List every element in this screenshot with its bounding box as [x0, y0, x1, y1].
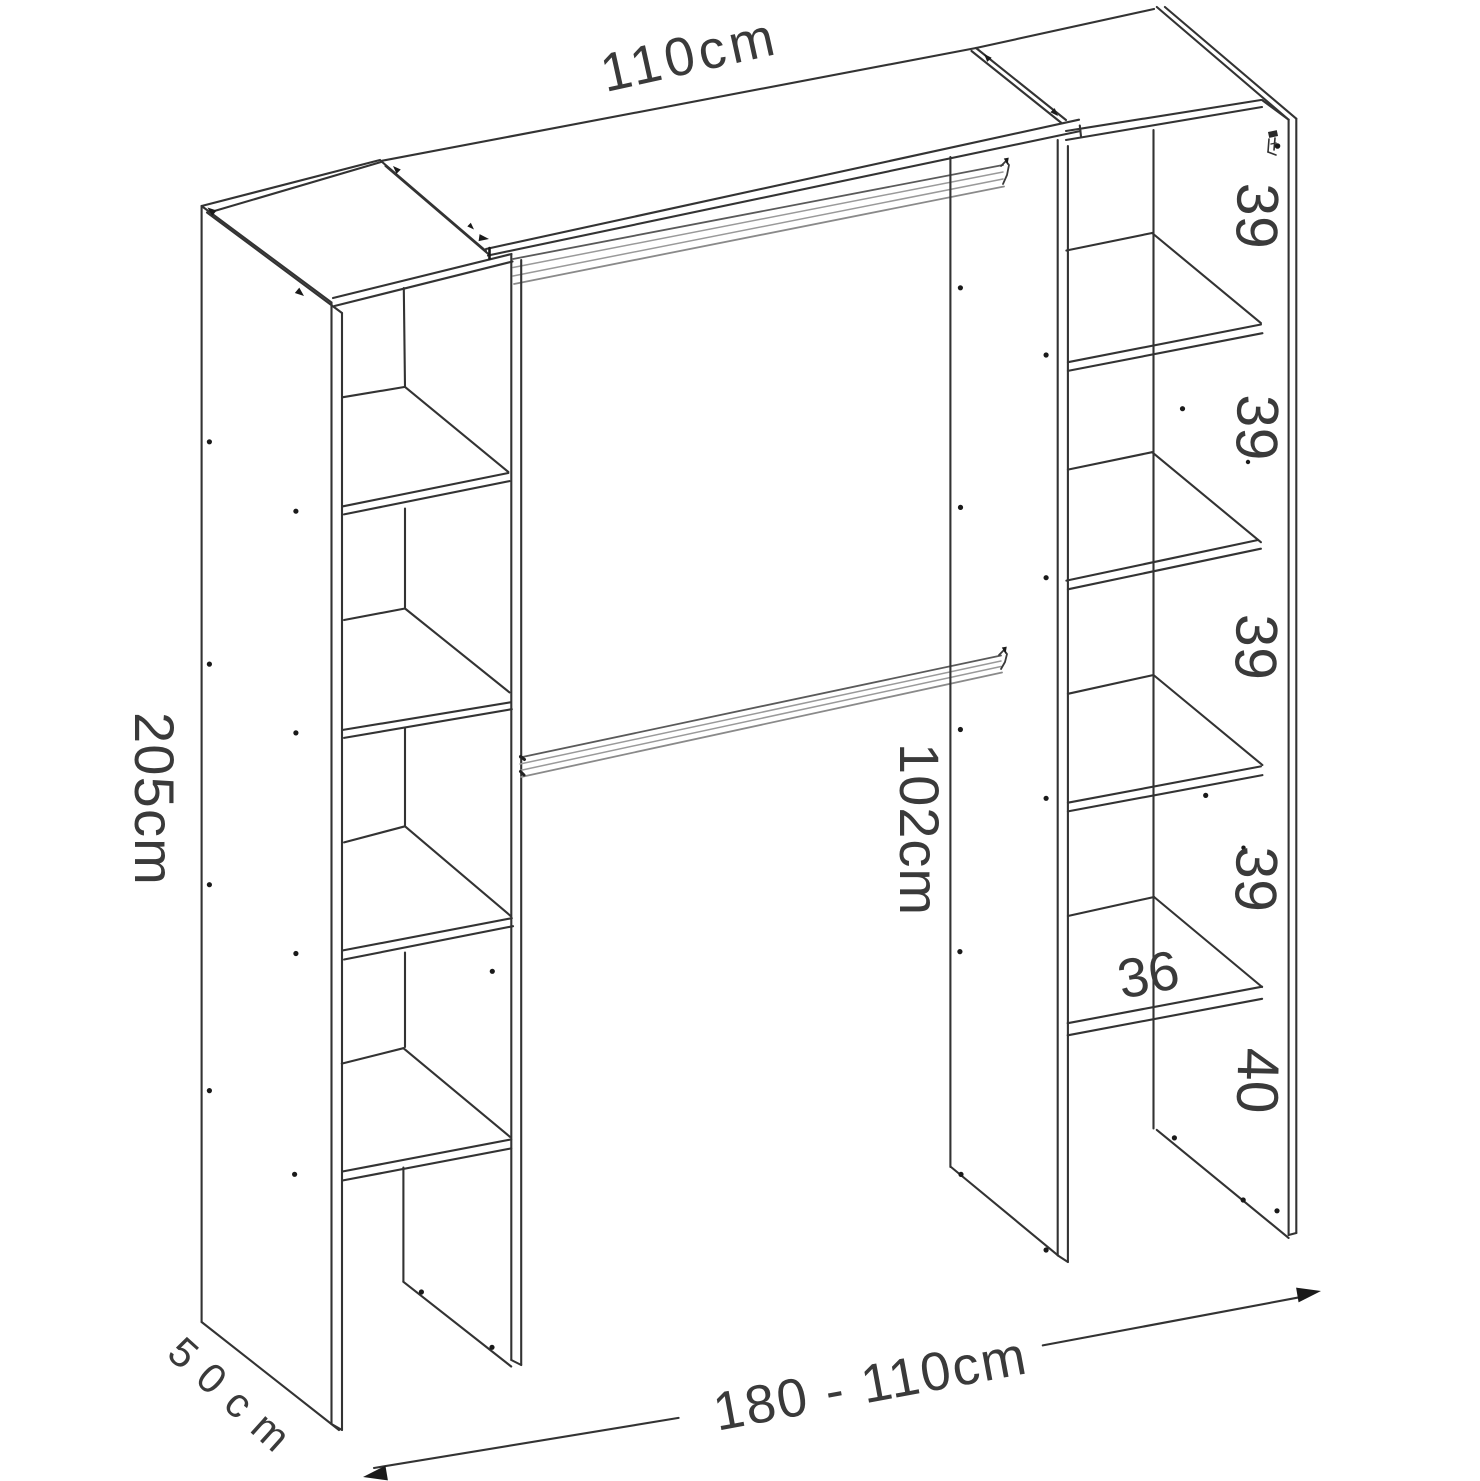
- svg-text:39: 39: [1222, 613, 1290, 680]
- svg-text:39: 39: [1223, 182, 1291, 249]
- svg-text:205cm: 205cm: [123, 712, 186, 886]
- svg-text:40: 40: [1224, 1047, 1292, 1114]
- svg-text:102cm: 102cm: [888, 743, 951, 916]
- svg-text:39: 39: [1223, 394, 1291, 461]
- svg-text:36: 36: [1112, 938, 1184, 1011]
- svg-text:39: 39: [1222, 845, 1290, 912]
